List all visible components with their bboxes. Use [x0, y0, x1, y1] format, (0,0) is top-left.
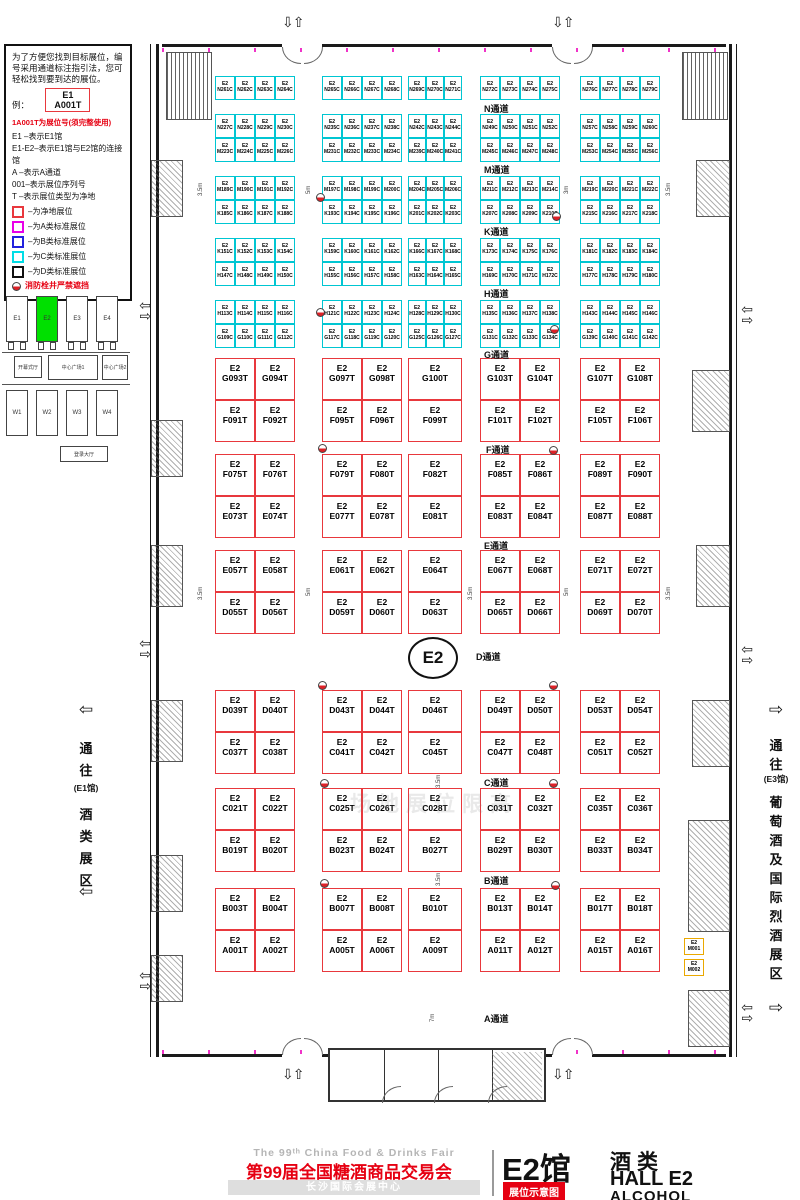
booth-M239C: E2M239C [408, 138, 426, 162]
legend-swatch-label: –为A类标准展位 [28, 222, 86, 232]
booth-F092T: E2F092T [255, 400, 295, 442]
booth-K162C: E2K162C [382, 238, 402, 262]
booth-K186C: E2K186C [235, 200, 255, 224]
stairs-structure [682, 52, 728, 120]
plan-badge: 展位示意图 [503, 1182, 565, 1200]
booth-K218C: E2K218C [640, 200, 660, 224]
booth-H123C: E2H123C [362, 300, 382, 324]
booth-H137C: E2H137C [520, 300, 540, 324]
route-label-char: 往 [66, 760, 106, 779]
booth-M219C: E2M219C [580, 176, 600, 200]
legend-swatch-label: –为C类标准展位 [28, 252, 86, 262]
booth-G131C: E2G131C [480, 324, 500, 348]
minimap-hall-W2: W2 [36, 390, 58, 436]
booth-N270C: E2N270C [426, 76, 444, 100]
booth-M232C: E2M232C [342, 138, 362, 162]
booth-type-swatch [12, 206, 24, 218]
booth-H136C: E2H136C [500, 300, 520, 324]
booth-E088T: E2E088T [620, 496, 660, 538]
booth-H158C: E2H158C [382, 262, 402, 286]
booth-C047T: E2C047T [480, 732, 520, 774]
minimap-stub [20, 342, 26, 350]
booth-H128C: E2H128C [408, 300, 426, 324]
booth-B020T: E2B020T [255, 830, 295, 872]
dimension-label: 3.5m [468, 587, 474, 600]
booth-D069T: E2D069T [580, 592, 620, 634]
booth-E058T: E2E058T [255, 550, 295, 592]
booth-M247C: E2M247C [520, 138, 540, 162]
booth-M198C: E2M198C [342, 176, 362, 200]
booth-F091T: E2F091T [215, 400, 255, 442]
wall-structure [696, 160, 730, 217]
booth-H165C: E2H165C [444, 262, 462, 286]
booth-H116C: E2H116C [275, 300, 295, 324]
booth-H146C: E2H146C [640, 300, 660, 324]
door-arc [574, 1038, 593, 1055]
booth-H156C: E2H156C [342, 262, 362, 286]
booth-M221C: E2M221C [620, 176, 640, 200]
booth-N257C: E2N257C [580, 114, 600, 138]
entrance-arrows-icon: ⇩⇧ [738, 1002, 755, 1023]
booth-G127C: E2G127C [444, 324, 462, 348]
booth-N263C: E2N263C [255, 76, 275, 100]
booth-C021T: E2C021T [215, 788, 255, 830]
booth-K166C: E2K166C [408, 238, 426, 262]
booth-N249C: E2N249C [480, 114, 500, 138]
booth-K173C: E2K173C [480, 238, 500, 262]
booth-G111C: E2G111C [255, 324, 275, 348]
hall-id-circle: E2 [408, 637, 458, 679]
booth-M205C: E2M205C [426, 176, 444, 200]
route-label-char: 萄 [756, 811, 796, 830]
booth-H157C: E2H157C [362, 262, 382, 286]
legend-swatch-row: –为净地展位 [12, 206, 125, 218]
booth-K209C: E2K209C [520, 200, 540, 224]
route-label-char: (E1馆) [66, 782, 106, 794]
booth-K159C: E2K159C [322, 238, 342, 262]
booth-D054T: E2D054T [620, 690, 660, 732]
booth-H122C: E2H122C [342, 300, 362, 324]
booth-M254C: E2M254C [600, 138, 620, 162]
booth-M211C: E2M211C [480, 176, 500, 200]
booth-M245C: E2M245C [480, 138, 500, 162]
booth-D065T: E2D065T [480, 592, 520, 634]
booth-M240C: E2M240C [426, 138, 444, 162]
dimension-label: 3.5m [198, 183, 204, 196]
booth-N262C: E2N262C [235, 76, 255, 100]
booth-G094T: E2G094T [255, 358, 295, 400]
booth-E077T: E2E077T [322, 496, 362, 538]
booth-K168C: E2K168C [444, 238, 462, 262]
booth-G097T: E2G097T [322, 358, 362, 400]
booth-F096T: E2F096T [362, 400, 402, 442]
booth-F105T: E2F105T [580, 400, 620, 442]
booth-M256C: E2M256C [640, 138, 660, 162]
booth-H177C: E2H177C [580, 262, 600, 286]
legend-swatch-row: –为C类标准展位 [12, 251, 125, 263]
route-label-char: 国 [756, 868, 796, 887]
stairs-structure [166, 52, 212, 120]
booth-H145C: E2H145C [620, 300, 640, 324]
fire-hydrant-icon [552, 212, 561, 221]
fire-hydrant-icon [320, 879, 329, 888]
booth-B018T: E2B018T [620, 888, 660, 930]
dimension-label: 3m [564, 186, 570, 194]
booth-G141C: E2G141C [620, 324, 640, 348]
booth-F086T: E2F086T [520, 454, 560, 496]
booth-E074T: E2E074T [255, 496, 295, 538]
dimension-label: 3.5m [436, 775, 442, 788]
legend-red-note: 1A001T为展位号(须完整使用) [12, 117, 125, 128]
fire-hydrant-icon [316, 193, 325, 202]
wall-structure [692, 370, 730, 432]
booth-K187C: E2K187C [255, 200, 275, 224]
booth-N228C: E2N228C [235, 114, 255, 138]
booth-G120C: E2G120C [382, 324, 402, 348]
booth-M253C: E2M253C [580, 138, 600, 162]
booth-F085T: E2F085T [480, 454, 520, 496]
direction-arrow-icon: ⇦ [66, 882, 106, 902]
booth-H163C: E2H163C [408, 262, 426, 286]
booth-G104T: E2G104T [520, 358, 560, 400]
booth-A006T: E2A006T [362, 930, 402, 972]
legend-line: E1 –表示E1馆 [12, 131, 125, 143]
booth-K194C: E2K194C [342, 200, 362, 224]
booth-N278C: E2N278C [620, 76, 640, 100]
booth-M204C: E2M204C [408, 176, 426, 200]
wall-structure [151, 955, 183, 1002]
booth-K167C: E2K167C [426, 238, 444, 262]
booth-M191C: E2M191C [255, 176, 275, 200]
booth-M199C: E2M199C [362, 176, 382, 200]
door-arc [552, 47, 571, 64]
fire-hydrant-icon [318, 681, 327, 690]
booth-M226C: E2M226C [275, 138, 295, 162]
minimap-stub [80, 342, 86, 350]
booth-A016T: E2A016T [620, 930, 660, 972]
entrance-arrows-icon: ⇩⇧ [136, 638, 153, 659]
wall-bottom [162, 1054, 282, 1057]
door-arc [304, 47, 323, 64]
aisle-label-H: H通道 [484, 287, 509, 300]
booth-C048T: E2C048T [520, 732, 560, 774]
dimension-label: 5m [564, 588, 570, 596]
minimap-hall-W3: W3 [66, 390, 88, 436]
legend-hydrant-row: 消防栓井严禁遮挡 [12, 281, 125, 291]
booth-K208C: E2K208C [500, 200, 520, 224]
legend-swatch-row: –为A类标准展位 [12, 221, 125, 233]
wall-structure [688, 820, 730, 932]
minimap-hall-E3: E3 [66, 296, 88, 342]
booth-M223C: E2M223C [215, 138, 235, 162]
booth-F082T: E2F082T [408, 454, 462, 496]
door-arc [282, 47, 301, 64]
booth-D046T: E2D046T [408, 690, 462, 732]
booth-C032T: E2C032T [520, 788, 560, 830]
booth-N264C: E2N264C [275, 76, 295, 100]
aisle-label-F: F通道 [486, 443, 510, 456]
booth-N252C: E2N252C [540, 114, 560, 138]
booth-H169C: E2H169C [480, 262, 500, 286]
booth-D043T: E2D043T [322, 690, 362, 732]
booth-M248C: E2M248C [540, 138, 560, 162]
entrance-arrows-icon: ⇩⇧ [282, 1066, 303, 1083]
entrance-arrows-icon: ⇩⇧ [552, 14, 573, 31]
booth-K207C: E2K207C [480, 200, 500, 224]
booth-F090T: E2F090T [620, 454, 660, 496]
booth-B030T: E2B030T [520, 830, 560, 872]
floorplan-page: 为了方便您找到目标展位，编号采用通道标注指引法，您可轻松找到要到达的展位。 例：… [0, 0, 800, 1200]
booth-C036T: E2C036T [620, 788, 660, 830]
booth-A001T: E2A001T [215, 930, 255, 972]
booth-H164C: E2H164C [426, 262, 444, 286]
booth-H144C: E2H144C [600, 300, 620, 324]
booth-F095T: E2F095T [322, 400, 362, 442]
booth-N273C: E2N273C [500, 76, 520, 100]
booth-H115C: E2H115C [255, 300, 275, 324]
booth-H179C: E2H179C [620, 262, 640, 286]
dimension-label: 3.5m [666, 587, 672, 600]
booth-D049T: E2D049T [480, 690, 520, 732]
aisle-label-M: M通道 [484, 163, 510, 176]
aisle-label-A: A通道 [484, 1012, 509, 1025]
booth-H129C: E2H129C [426, 300, 444, 324]
booth-M246C: E2M246C [500, 138, 520, 162]
booth-K215C: E2K215C [580, 200, 600, 224]
booth-M189C: E2M189C [215, 176, 235, 200]
booth-G133C: E2G133C [520, 324, 540, 348]
dimension-label: 5m [306, 186, 312, 194]
legend-swatch-label: –为B类标准展位 [28, 237, 86, 247]
booth-B014T: E2B014T [520, 888, 560, 930]
booth-M001: E2M001 [684, 938, 704, 955]
route-label-char: 酒 [66, 804, 106, 823]
booth-F099T: E2F099T [408, 400, 462, 442]
wall-top [592, 44, 726, 47]
route-label-char: 葡 [756, 792, 796, 811]
booth-E062T: E2E062T [362, 550, 402, 592]
minimap-hall-E1: E1 [6, 296, 28, 342]
route-label-char: 往 [756, 754, 796, 773]
minimap-stub [68, 342, 74, 350]
booth-D044T: E2D044T [362, 690, 402, 732]
entrance-arrows-icon: ⇩⇧ [136, 300, 153, 321]
booth-H147C: E2H147C [215, 262, 235, 286]
legend-swatch-label: –为D类标准展位 [28, 267, 86, 277]
booth-E084T: E2E084T [520, 496, 560, 538]
legend-hydrant-note: 消防栓井严禁遮挡 [25, 281, 89, 291]
booth-H170C: E2H170C [500, 262, 520, 286]
booth-C037T: E2C037T [215, 732, 255, 774]
booth-C051T: E2C051T [580, 732, 620, 774]
booth-N279C: E2N279C [640, 76, 660, 100]
door-arc [552, 1038, 571, 1055]
booth-M200C: E2M200C [382, 176, 402, 200]
booth-N272C: E2N272C [480, 76, 500, 100]
minimap-plaza1: 中心广场1 [48, 355, 98, 380]
booth-G107T: E2G107T [580, 358, 620, 400]
wall-structure [151, 160, 183, 217]
wall-bottom [592, 1054, 726, 1057]
legend-sample-code: A001T [54, 100, 81, 110]
legend-line: E1-E2–表示E1馆与E2馆的连接馆 [12, 143, 125, 167]
aisle-label-E: E通道 [484, 539, 508, 552]
booth-A002T: E2A002T [255, 930, 295, 972]
legend-line: A –表示A通道 [12, 167, 125, 179]
minimap-corridor [2, 352, 130, 353]
booth-type-swatch [12, 221, 24, 233]
legend-swatches: –为净地展位–为A类标准展位–为B类标准展位–为C类标准展位–为D类标准展位 [12, 206, 125, 278]
booth-E071T: E2E071T [580, 550, 620, 592]
booth-M231C: E2M231C [322, 138, 342, 162]
booth-F106T: E2F106T [620, 400, 660, 442]
booth-K202C: E2K202C [426, 200, 444, 224]
direction-arrow-icon: ⇨ [756, 700, 796, 720]
booth-A012T: E2A012T [520, 930, 560, 972]
booth-M234C: E2M234C [382, 138, 402, 162]
fire-hydrant-icon [549, 681, 558, 690]
aisle-label-G: G通道 [484, 348, 509, 361]
route-label-char: 区 [756, 963, 796, 982]
booth-K153C: E2K153C [255, 238, 275, 262]
booth-H171C: E2H171C [520, 262, 540, 286]
booth-N265C: E2N265C [322, 76, 342, 100]
dimension-label: 7m [430, 1014, 436, 1022]
minimap-hall-W4: W4 [96, 390, 118, 436]
fire-hydrant-icon [320, 779, 329, 788]
booth-D050T: E2D050T [520, 690, 560, 732]
booth-B004T: E2B004T [255, 888, 295, 930]
route-label-char: 烈 [756, 906, 796, 925]
booth-type-swatch [12, 236, 24, 248]
booth-G112C: E2G112C [275, 324, 295, 348]
watermark: 场地展位限高 [350, 788, 518, 818]
booth-K201C: E2K201C [408, 200, 426, 224]
booth-B033T: E2B033T [580, 830, 620, 872]
booth-N266C: E2N266C [342, 76, 362, 100]
booth-D060T: E2D060T [362, 592, 402, 634]
booth-N235C: E2N235C [322, 114, 342, 138]
door-arc [574, 47, 593, 64]
booth-M192C: E2M192C [275, 176, 295, 200]
legend-line: T –表示展位类型为净地 [12, 191, 125, 203]
booth-D055T: E2D055T [215, 592, 255, 634]
booth-N268C: E2N268C [382, 76, 402, 100]
booth-F102T: E2F102T [520, 400, 560, 442]
booth-A005T: E2A005T [322, 930, 362, 972]
booth-E057T: E2E057T [215, 550, 255, 592]
booth-D056T: E2D056T [255, 592, 295, 634]
aisle-label-K: K通道 [484, 225, 509, 238]
booth-B023T: E2B023T [322, 830, 362, 872]
booth-B003T: E2B003T [215, 888, 255, 930]
booth-H143C: E2H143C [580, 300, 600, 324]
fire-hydrant-icon [551, 881, 560, 890]
booth-G119C: E2G119C [362, 324, 382, 348]
legend-lines: E1 –表示E1馆E1-E2–表示E1馆与E2馆的连接馆A –表示A通道001–… [12, 131, 125, 203]
booth-B024T: E2B024T [362, 830, 402, 872]
minimap-plaza2: 中心广场2 [102, 355, 128, 380]
dimension-label: 3.5m [666, 183, 672, 196]
booth-K216C: E2K216C [600, 200, 620, 224]
booth-H130C: E2H130C [444, 300, 462, 324]
booth-B027T: E2B027T [408, 830, 462, 872]
booth-D066T: E2D066T [520, 592, 560, 634]
booth-F080T: E2F080T [362, 454, 402, 496]
dimension-label: 5m [306, 588, 312, 596]
booth-K185C: E2K185C [215, 200, 235, 224]
fire-hydrant-icon [318, 444, 327, 453]
booth-G110C: E2G110C [235, 324, 255, 348]
booth-N271C: E2N271C [444, 76, 462, 100]
door-arc [282, 1038, 301, 1055]
booth-E073T: E2E073T [215, 496, 255, 538]
booth-G098T: E2G098T [362, 358, 402, 400]
booth-H124C: E2H124C [382, 300, 402, 324]
booth-E061T: E2E061T [322, 550, 362, 592]
booth-B029T: E2B029T [480, 830, 520, 872]
booth-E078T: E2E078T [362, 496, 402, 538]
booth-E081T: E2E081T [408, 496, 462, 538]
booth-H138C: E2H138C [540, 300, 560, 324]
fire-hydrant-icon [549, 779, 558, 788]
entrance-arrows-icon: ⇩⇧ [552, 1066, 573, 1083]
minimap-stub [50, 342, 56, 350]
route-label-char: 际 [756, 887, 796, 906]
booth-M222C: E2M222C [640, 176, 660, 200]
booth-C035T: E2C035T [580, 788, 620, 830]
legend-intro: 为了方便您找到目标展位，编号采用通道标注指引法，您可轻松找到要到达的展位。 [12, 52, 125, 85]
booth-N251C: E2N251C [520, 114, 540, 138]
booth-K176C: E2K176C [540, 238, 560, 262]
legend-example-label: 例： [12, 100, 29, 110]
booth-M002: E2M002 [684, 959, 704, 976]
booth-M220C: E2M220C [600, 176, 620, 200]
booth-M224C: E2M224C [235, 138, 255, 162]
minimap-corridor [2, 384, 130, 385]
footer-divider [492, 1150, 494, 1196]
booth-M214C: E2M214C [540, 176, 560, 200]
booth-N275C: E2N275C [540, 76, 560, 100]
route-label-char: 展 [66, 848, 106, 867]
booth-K195C: E2K195C [362, 200, 382, 224]
booth-N244C: E2N244C [444, 114, 462, 138]
category-en: ALCOHOL [610, 1188, 691, 1200]
booth-G125C: E2G125C [408, 324, 426, 348]
booth-B034T: E2B034T [620, 830, 660, 872]
booth-C022T: E2C022T [255, 788, 295, 830]
dimension-label: 3.5m [198, 587, 204, 600]
booth-G108T: E2G108T [620, 358, 660, 400]
booth-M206C: E2M206C [444, 176, 462, 200]
booth-K174C: E2K174C [500, 238, 520, 262]
booth-C052T: E2C052T [620, 732, 660, 774]
route-label-char: 展 [756, 944, 796, 963]
booth-N276C: E2N276C [580, 76, 600, 100]
venue-name: 长沙国际会展中心 [228, 1180, 480, 1195]
booth-K154C: E2K154C [275, 238, 295, 262]
booth-D053T: E2D053T [580, 690, 620, 732]
booth-type-swatch [12, 266, 24, 278]
booth-M233C: E2M233C [362, 138, 382, 162]
booth-N269C: E2N269C [408, 76, 426, 100]
booth-K193C: E2K193C [322, 200, 342, 224]
aisle-label-N: N通道 [484, 102, 509, 115]
booth-K181C: E2K181C [580, 238, 600, 262]
route-label-char: 酒 [756, 830, 796, 849]
route-label-char: (E3馆) [756, 773, 796, 785]
wall-ticks [162, 48, 726, 52]
